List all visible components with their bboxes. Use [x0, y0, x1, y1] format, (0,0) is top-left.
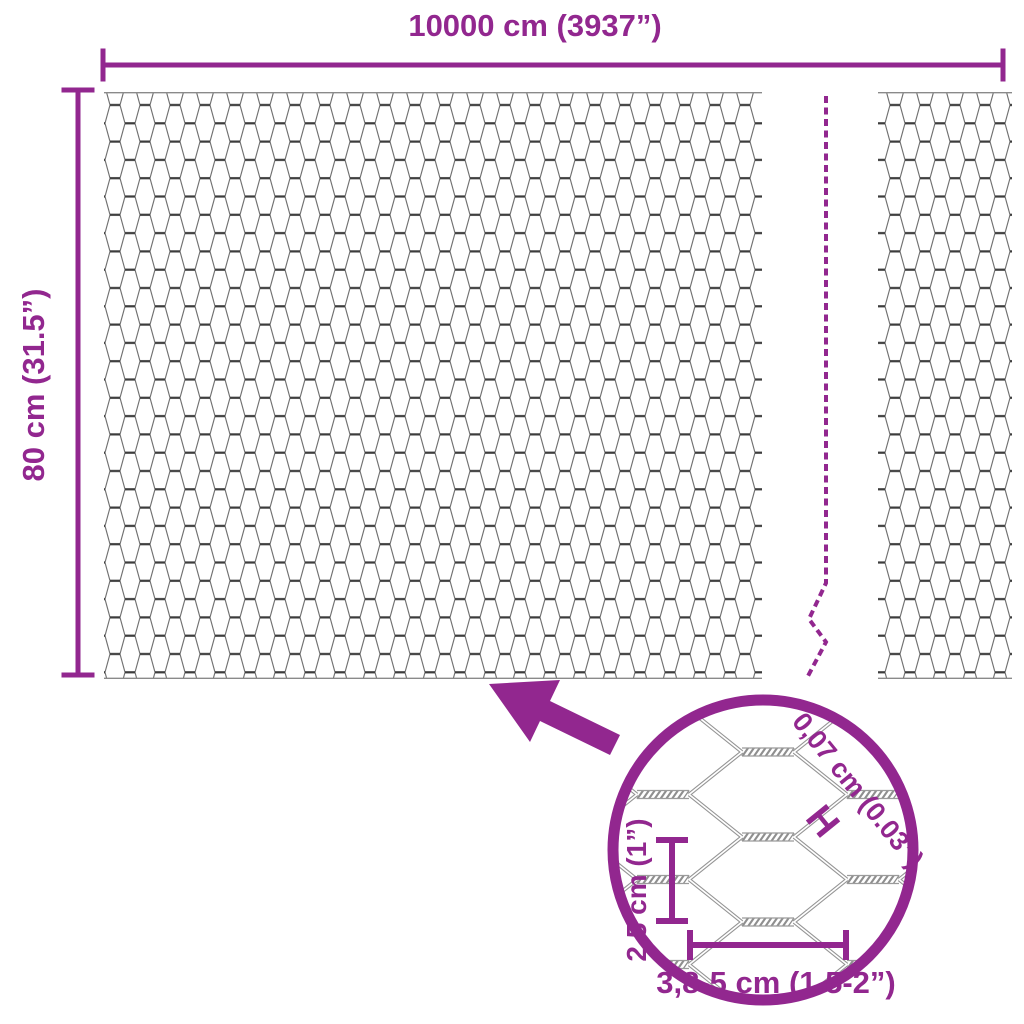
product-dimension-diagram: 10000 cm (3937”) 80 cm (31.5”) 0,07 cm (… [0, 0, 1024, 1024]
diagram-canvas: 10000 cm (3937”) 80 cm (31.5”) 0,07 cm (… [0, 0, 1024, 1024]
height-label: 80 cm (31.5”) [16, 289, 51, 482]
mesh-texture [104, 92, 762, 679]
zoom-arrow-icon [489, 680, 620, 755]
break-line [808, 96, 826, 676]
mesh-height-label: 2,5 cm (1”) [621, 818, 652, 961]
magnifier-detail: 0,07 cm (0.03”) H 2,5 cm (1”) 3,8-5 cm (… [613, 700, 930, 1002]
width-label: 10000 cm (3937”) [408, 8, 661, 43]
mesh-panel-continuation [878, 92, 1012, 679]
top-dimension: 10000 cm (3937”) [103, 8, 1003, 82]
side-dimension: 80 cm (31.5”) [16, 90, 95, 675]
mesh-texture-continuation [878, 92, 1012, 679]
mesh-size-label: 3,8-5 cm (1.5-2”) [656, 965, 896, 1000]
mesh-panel-main [104, 92, 762, 679]
